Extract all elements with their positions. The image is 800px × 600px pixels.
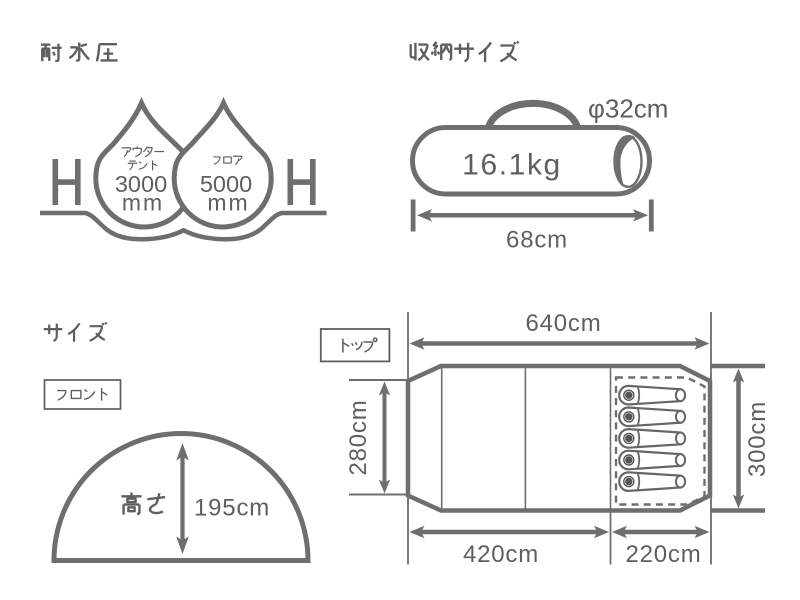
svg-text:220cm: 220cm bbox=[625, 541, 701, 568]
svg-text:68cm: 68cm bbox=[506, 227, 568, 254]
svg-text:195cm: 195cm bbox=[194, 495, 270, 522]
svg-text:mm: mm bbox=[122, 190, 164, 216]
svg-text:280cm: 280cm bbox=[345, 399, 372, 475]
svg-text:420cm: 420cm bbox=[463, 541, 539, 568]
svg-text:mm: mm bbox=[207, 190, 249, 216]
svg-text:640cm: 640cm bbox=[525, 310, 601, 337]
svg-text:16.1kg: 16.1kg bbox=[462, 149, 562, 182]
svg-text:300cm: 300cm bbox=[744, 401, 771, 477]
svg-text:φ32cm: φ32cm bbox=[588, 94, 668, 124]
